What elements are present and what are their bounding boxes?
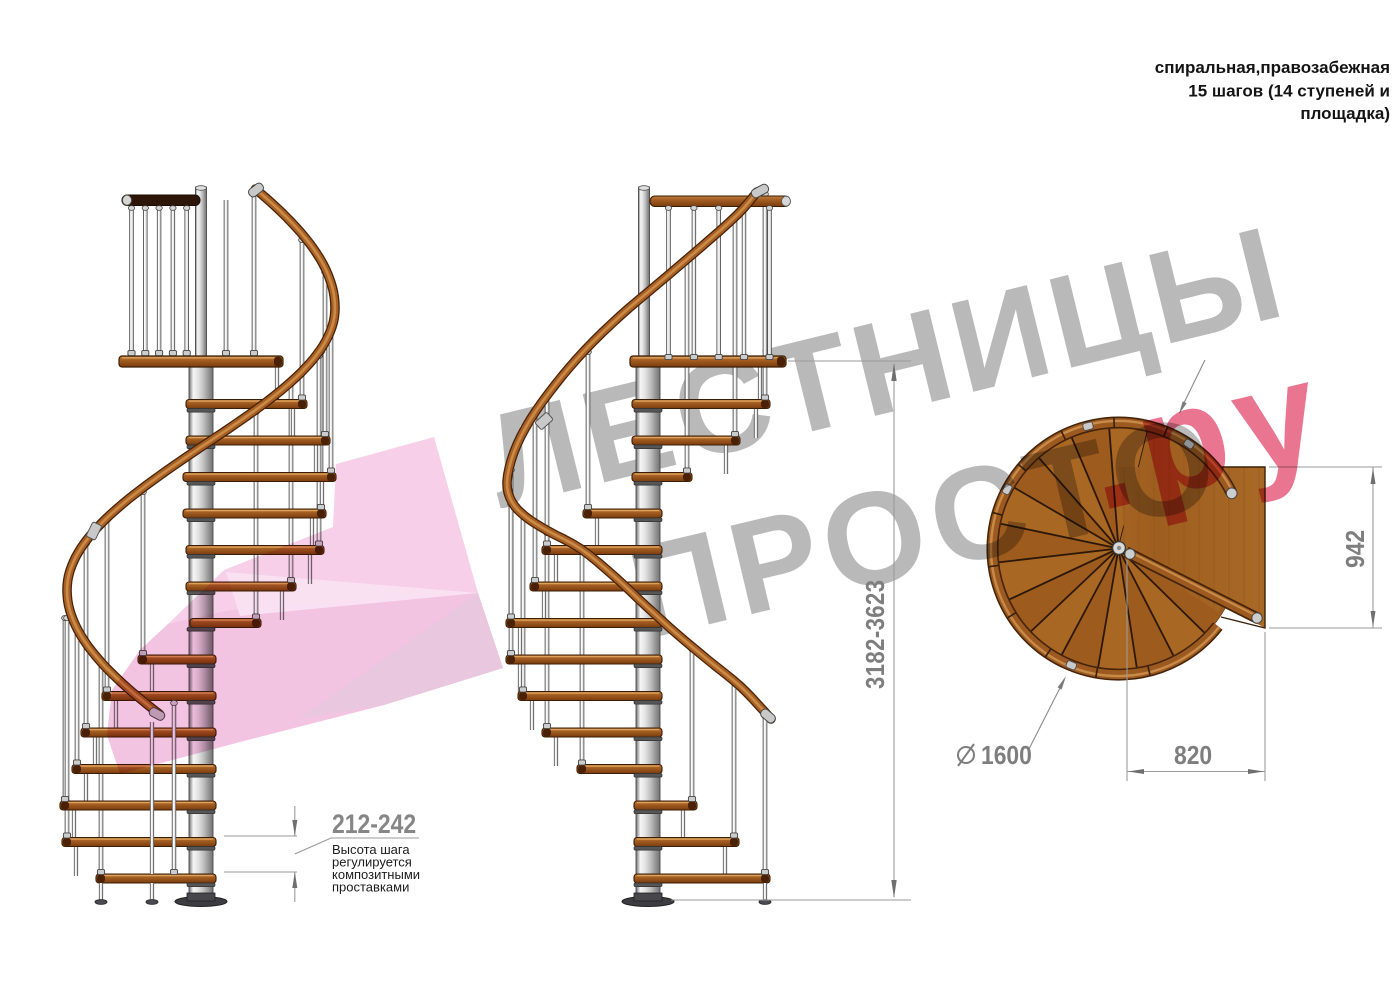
svg-text:спиральная,правозабежная: спиральная,правозабежная <box>1155 58 1390 77</box>
svg-text:942: 942 <box>1342 530 1371 568</box>
svg-text:15 шагов (14 ступеней и: 15 шагов (14 ступеней и <box>1188 82 1390 101</box>
svg-text:площадка): площадка) <box>1300 104 1390 123</box>
svg-text:проставками: проставками <box>332 880 409 895</box>
svg-text:820: 820 <box>1174 742 1212 771</box>
svg-text:212-242: 212-242 <box>332 809 416 839</box>
svg-text:3182-3623: 3182-3623 <box>861 580 890 689</box>
svg-text:1600: 1600 <box>981 742 1032 771</box>
